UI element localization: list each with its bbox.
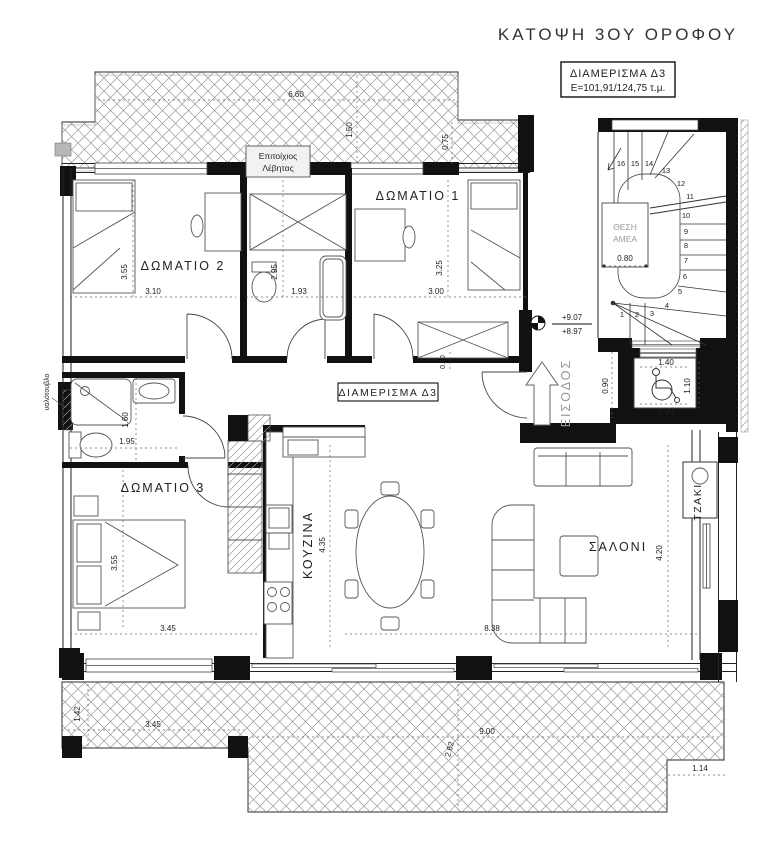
dim-top-length: 6.60 — [288, 90, 304, 99]
page-title: ΚΑΤΟΨΗ 3ΟΥ ΟΡΟΦΟΥ — [498, 25, 738, 44]
amea-label-2: ΑΜΕΑ — [613, 234, 637, 244]
glass-block-note: υαλότουβλο — [43, 374, 72, 430]
floor-plan-svg: ΚΑΤΟΨΗ 3ΟΥ ΟΡΟΦΟΥ ΔΙΑΜΕΡΙΣΜΑ Δ3 Ε=101,91… — [0, 0, 768, 859]
wc-fixtures — [250, 194, 346, 320]
step-12: 12 — [677, 179, 685, 188]
floor-plan-canvas: ΚΑΤΟΨΗ 3ΟΥ ΟΡΟΦΟΥ ΔΙΑΜΕΡΙΣΜΑ Δ3 Ε=101,91… — [0, 0, 768, 859]
dim-room1-h: 3.25 — [435, 260, 444, 276]
elevator: 1.40 1.90 1.10 0.90 — [601, 348, 738, 424]
room3-furniture — [73, 441, 262, 630]
fireplace: ΤΖΑΚΙ — [683, 462, 717, 521]
room1-balcony-window — [351, 163, 423, 174]
step-4: 4 — [665, 301, 669, 310]
dining-set — [345, 482, 434, 630]
dim-room3-h: 3.55 — [110, 555, 119, 571]
living-sliding-door-1 — [252, 664, 454, 672]
hall-tag-label: ΔΙΑΜΕΡΙΣΜΑ Δ3 — [339, 387, 438, 399]
dim-bath-h: 1.60 — [121, 412, 130, 428]
dim-top-depth2: 0.75 — [441, 134, 450, 150]
bottom-terrace — [62, 682, 724, 812]
kitchen-label: ΚΟΥΖΙΝΑ — [301, 511, 315, 579]
dim-gap: 0.10 — [440, 355, 447, 369]
wc-door — [287, 319, 325, 359]
living-label: ΣΑΛΟΝΙ — [589, 540, 647, 554]
bath-door — [183, 416, 225, 458]
dim-wc-h: 2.95 — [270, 264, 279, 280]
level-lower: +8.97 — [562, 327, 583, 336]
amea-parking-box: ΘΕΣΗ ΑΜΕΑ 0.80 — [602, 203, 648, 268]
boiler-box: Επιτοίχιος Λέβητας — [246, 146, 310, 177]
facade-gray-block — [55, 143, 71, 156]
room1-label: ΔΩΜΑΤΙΟ 1 — [376, 189, 461, 203]
room2-furniture — [73, 180, 241, 293]
step-13: 13 — [662, 166, 670, 175]
dim-elevator-depth: 1.10 — [683, 378, 692, 394]
step-10: 10 — [682, 211, 690, 220]
room3-label: ΔΩΜΑΤΙΟ 3 — [121, 481, 206, 495]
dim-living-w: 8.38 — [484, 624, 500, 633]
room3-window — [86, 659, 212, 672]
step-8: 8 — [684, 241, 688, 250]
room2-door — [187, 314, 232, 359]
dim-bath-w: 1.95 — [119, 437, 135, 446]
dim-lobby-width: 0.90 — [601, 378, 610, 394]
step-9: 9 — [684, 227, 688, 236]
fireplace-label: ΤΖΑΚΙ — [692, 483, 704, 520]
dim-elevator-width2: 1.90 — [658, 407, 674, 416]
step-5: 5 — [678, 287, 682, 296]
step-15: 15 — [631, 159, 639, 168]
step-1: 1 — [620, 310, 624, 319]
dim-terrace1-h: 1.42 — [73, 706, 82, 722]
apartment-entry-door — [482, 372, 527, 418]
room1-door — [374, 314, 413, 359]
step-7: 7 — [684, 256, 688, 265]
glass-block-label: υαλότουβλο — [43, 374, 51, 411]
hall-closet — [418, 322, 508, 358]
dim-terrace-step: 1.14 — [692, 764, 708, 773]
apartment-area: Ε=101,91/124,75 τ.μ. — [571, 83, 666, 94]
dim-terrace1-w: 3.45 — [145, 720, 161, 729]
dim-terrace2-w: 9.00 — [479, 727, 495, 736]
entrance-area: ΕΙΣΟΔΟΣ +9.07 +8.97 — [526, 313, 592, 427]
apartment-id: ΔΙΑΜΕΡΙΣΜΑ Δ3 — [570, 68, 666, 80]
level-upper: +9.07 — [562, 313, 583, 322]
dim-room3-w: 3.45 — [160, 624, 176, 633]
step-2: 2 — [635, 310, 639, 319]
right-insulation-strip — [741, 120, 748, 432]
drawing-title: ΚΑΤΟΨΗ 3ΟΥ ΟΡΟΦΟΥ — [498, 25, 738, 44]
room2-balcony-window — [95, 163, 207, 174]
dim-wc-w: 1.93 — [291, 287, 307, 296]
dim-kitchen-h: 4.35 — [318, 537, 327, 553]
dim-top-depth1: 1.50 — [345, 122, 354, 138]
dim-room1-w: 3.00 — [428, 287, 444, 296]
amea-label-1: ΘΕΣΗ — [613, 222, 637, 232]
step-3: 3 — [650, 309, 654, 318]
dim-elevator-width: 1.40 — [658, 358, 674, 367]
boiler-label-2: Λέβητας — [262, 163, 293, 173]
living-sliding-door-2 — [494, 664, 698, 672]
step-16: 16 — [617, 159, 625, 168]
dim-room2-w: 3.10 — [145, 287, 161, 296]
entrance-label: ΕΙΣΟΔΟΣ — [559, 359, 573, 428]
room2-label: ΔΩΜΑΤΙΟ 2 — [141, 259, 226, 273]
step-11: 11 — [686, 192, 694, 201]
hall-tag-box: ΔΙΑΜΕΡΙΣΜΑ Δ3 — [338, 383, 438, 401]
apartment-info-box: ΔΙΑΜΕΡΙΣΜΑ Δ3 Ε=101,91/124,75 τ.μ. — [561, 62, 675, 97]
dim-room2-h: 3.55 — [120, 264, 129, 280]
step-14: 14 — [645, 159, 653, 168]
boiler-label-1: Επιτοίχιος — [259, 151, 297, 161]
level-marker: +9.07 +8.97 — [531, 313, 592, 336]
dim-living-h: 4.20 — [655, 545, 664, 561]
dim-amea: 0.80 — [617, 254, 633, 263]
step-6: 6 — [683, 272, 687, 281]
